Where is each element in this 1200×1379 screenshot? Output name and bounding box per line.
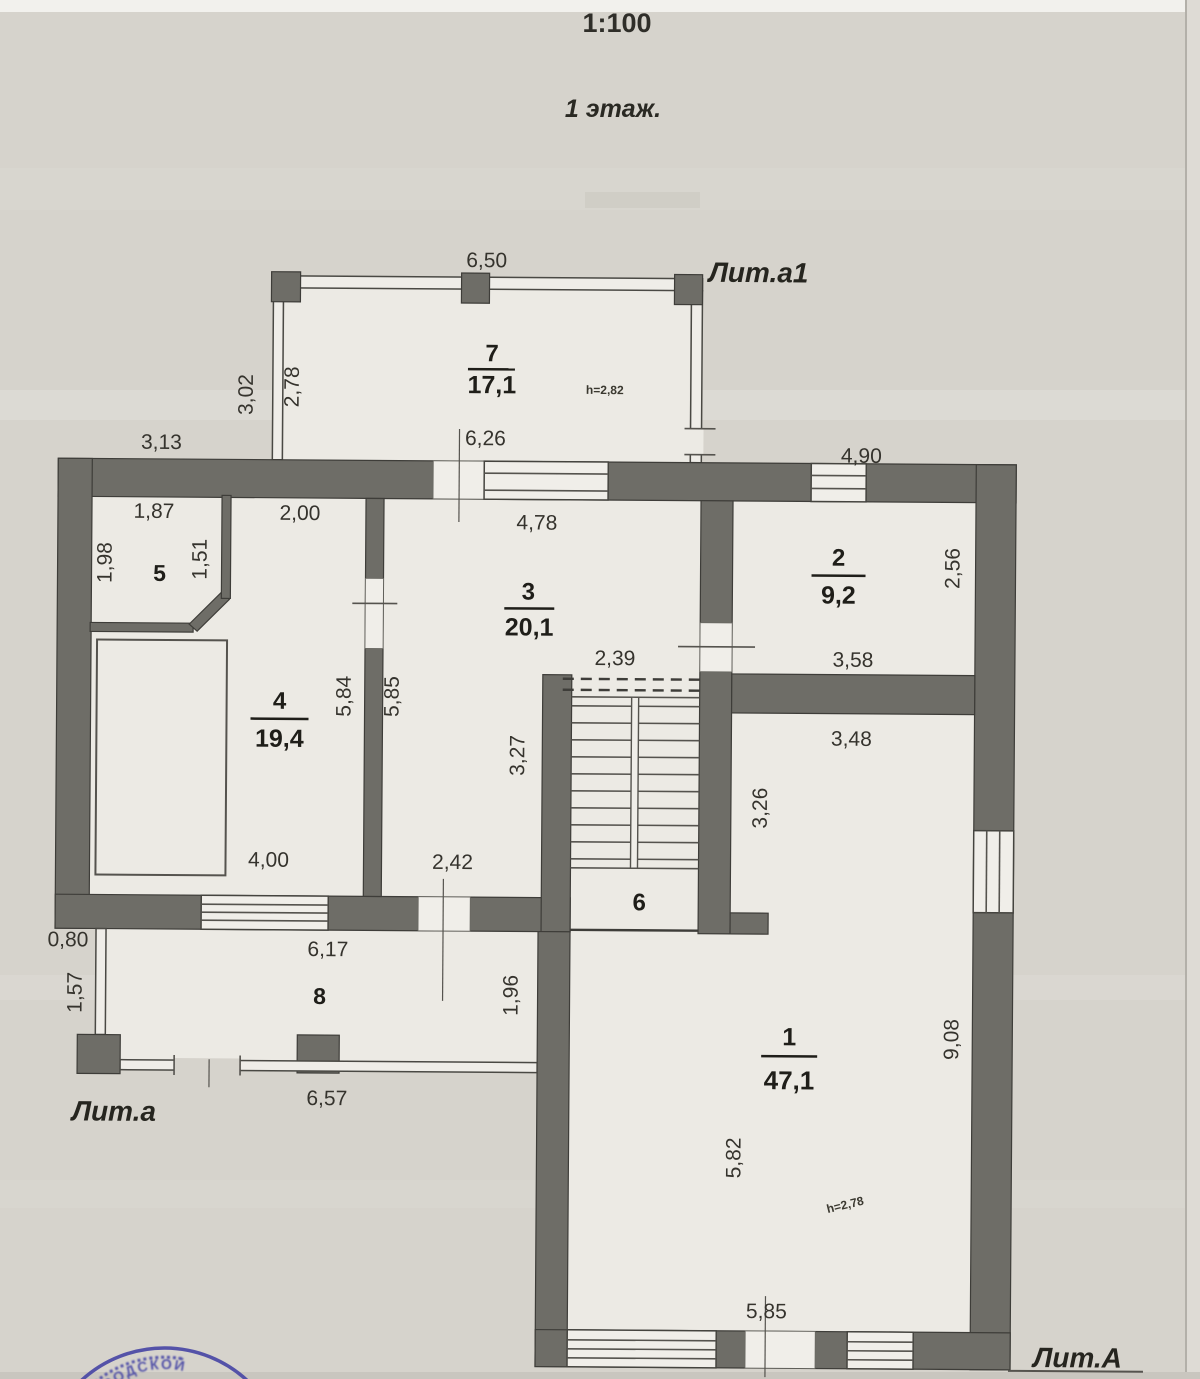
porch-corner-post <box>77 1034 120 1073</box>
window-room1-south-left <box>567 1330 716 1368</box>
liter-label-porch: Лит.а <box>70 1095 156 1127</box>
dim-stairs-top: 2,39 <box>594 647 635 670</box>
dim-veranda-left-inner: 2,78 <box>281 366 304 407</box>
dim-room2-bottom: 3,58 <box>832 649 873 672</box>
room7-height-note: h=2,82 <box>586 383 624 397</box>
veranda-door-gap <box>688 429 703 455</box>
dim-room1-left: 5,82 <box>722 1137 745 1178</box>
dim-room2-right: 2,56 <box>941 548 964 589</box>
main-lower-interior <box>567 898 973 1335</box>
bleed-through-smudge <box>585 192 700 208</box>
dim-line <box>459 429 460 522</box>
floor-plan-svg: 1:100 1 этаж. <box>0 0 1200 1379</box>
dim-back-door: 2,42 <box>432 851 473 874</box>
dim-porch-bottom: 6,57 <box>306 1087 347 1110</box>
dim-porch-top: 6,17 <box>307 938 348 961</box>
room2-area: 9,2 <box>821 582 856 610</box>
liter-label-veranda: Лит.а1 <box>707 257 809 289</box>
veranda-post <box>271 272 300 302</box>
dim-porch-right: 1,96 <box>499 975 522 1016</box>
back-door-opening <box>418 897 470 931</box>
dim-room4-right: 5,84 <box>333 675 356 716</box>
room1-number: 1 <box>782 1023 796 1051</box>
door-leaf-line <box>678 647 755 648</box>
dim-alcove-top: 3,48 <box>831 728 872 751</box>
room7-area: 17,1 <box>467 371 516 399</box>
dim-corridor: 2,00 <box>279 502 320 525</box>
room4-door-opening <box>365 578 383 648</box>
west-wall-lower-section <box>535 932 570 1367</box>
dim-alcove-left: 3,26 <box>749 788 772 829</box>
room2-number: 2 <box>832 545 846 572</box>
room5-bottom-partition <box>90 622 193 632</box>
stair-stringer <box>630 697 638 868</box>
dim-room4-bottom: 4,00 <box>248 849 289 872</box>
dim-room1-right: 9,08 <box>940 1019 963 1060</box>
room1-area: 47,1 <box>764 1065 815 1095</box>
room5-right-partition <box>221 495 231 598</box>
room8-number: 8 <box>313 983 326 1009</box>
porch-left-wall <box>95 928 106 1034</box>
dim-veranda-left-outer: 3,02 <box>235 374 258 415</box>
dim-room5-right: 1,51 <box>188 539 211 580</box>
window-room3-north <box>484 461 608 500</box>
dim-porch-offset: 0,80 <box>47 928 88 951</box>
dim-room3-lower: 3,27 <box>506 735 529 776</box>
landing-edge-line <box>570 930 698 931</box>
window-room2-north <box>811 463 866 501</box>
east-wall <box>970 465 1016 1370</box>
page-right-edge <box>1186 0 1200 1379</box>
dim-veranda-bottom: 6,26 <box>465 427 506 450</box>
front-door-opening <box>745 1331 815 1368</box>
porch-window-gap <box>174 1058 240 1072</box>
dim-veranda-width: 6,50 <box>466 249 507 272</box>
stairwell-left-wall <box>541 675 572 932</box>
wall-stub <box>730 913 768 934</box>
veranda-post <box>674 275 702 305</box>
dim-room3-left: 5,85 <box>381 676 404 717</box>
west-wall <box>55 458 92 928</box>
window-room4-south <box>201 895 328 930</box>
liter-label-main: Лит.А <box>1031 1342 1122 1374</box>
wall-below-room2 <box>732 674 975 715</box>
dim-line <box>443 879 444 1001</box>
room4-number: 4 <box>273 688 287 715</box>
floor-label: 1 этаж. <box>565 95 661 123</box>
room3-number: 3 <box>522 578 536 605</box>
dim-room2-window: 4,90 <box>841 445 882 468</box>
dim-top-left: 3,13 <box>141 431 182 454</box>
room4-area: 19,4 <box>255 725 304 753</box>
veranda-post <box>461 273 489 303</box>
dim-room3-top: 4,78 <box>516 511 557 534</box>
room5-number: 5 <box>153 560 166 586</box>
dim-front-door: 5,85 <box>746 1300 787 1323</box>
window-room1-south-right <box>847 1332 913 1369</box>
room7-number: 7 <box>485 340 499 367</box>
partition-room3-room2 <box>698 501 733 934</box>
dim-room5-left: 1,98 <box>93 542 116 583</box>
dim-porch-left: 1,57 <box>63 972 86 1013</box>
room6-number: 6 <box>632 889 646 916</box>
room3-area: 20,1 <box>505 613 554 641</box>
scale-label: 1:100 <box>582 8 651 38</box>
window-room1-east <box>973 831 1014 913</box>
floor-plan-scan: 1:100 1 этаж. <box>0 0 1200 1379</box>
dim-room5-top: 1,87 <box>133 500 174 523</box>
